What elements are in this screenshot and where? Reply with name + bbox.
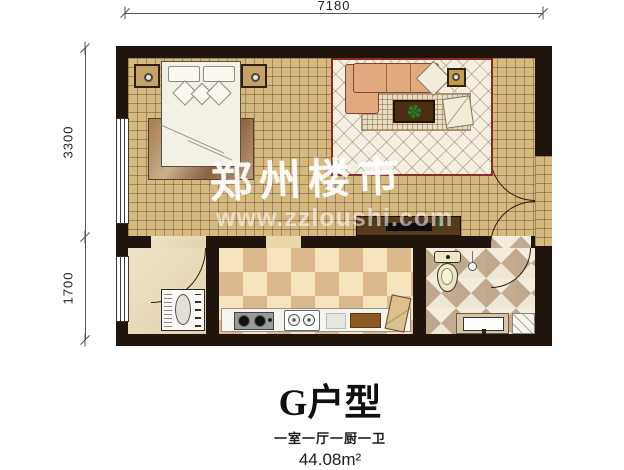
flush-button [446,255,450,259]
knob-icon [251,73,260,82]
window-icon [116,256,129,322]
dim-tick [79,42,92,55]
sink-basin [303,314,315,326]
nightstand-icon [241,64,267,88]
burner-icon [254,315,266,327]
dim-left-upper-label: 3300 [61,126,76,159]
blanket-fold [188,140,232,160]
burner-icon [238,315,250,327]
toilet-icon [434,251,461,263]
end-table-icon [447,68,466,87]
vanity-sink-icon [456,313,509,334]
knob-icon [452,73,460,81]
plan-title: G户型 [36,384,624,425]
floorplan-image: 7180 3300 1700 [0,0,624,470]
toilet-bowl [441,268,453,285]
faucet-icon [482,329,486,334]
kitchen-sink-icon [284,310,320,331]
nightstand-icon [134,64,160,88]
washer-drum [175,294,191,325]
plan-layout-label: 一室一厅一厨一卫 [36,428,624,447]
plan-walls [116,46,552,346]
dim-tick [537,7,550,20]
hall-door-opening [151,236,206,248]
blanket-fold [160,124,224,153]
bed-icon [161,61,241,167]
stove-icon [234,312,274,330]
entry-opening [535,156,552,246]
washer-knobs [195,294,201,327]
bath-mat-icon [512,313,535,334]
dim-top-line [125,13,543,14]
dim-left-lower-label: 1700 [61,272,76,305]
tv-icon [386,223,432,231]
kitchen-pass-opening [266,236,301,248]
plan-area-label: 44.08m² [36,450,624,470]
plant-icon [437,220,444,227]
caption: G户型 一室一厅一厨一卫 44.08m² [36,384,624,470]
window-icon [116,118,129,224]
stove-dial [268,318,272,322]
dim-top-label: 7180 [125,0,543,13]
plant-icon [408,105,421,118]
knob-icon [144,73,153,82]
shower-head-icon [468,262,477,271]
shower-hose [472,251,473,262]
dim-tick [79,334,92,347]
pillow-icon [206,80,231,105]
coffee-table-icon [393,100,435,123]
washer-controls [164,292,172,327]
dim-tick [119,7,132,20]
cutting-board-icon [350,313,381,328]
kitchen-counter [221,308,411,332]
dim-left-line [85,48,86,340]
bath-mat-icon [326,313,346,329]
tv-cabinet-icon [356,216,461,236]
washing-machine-icon [161,289,205,331]
dim-tick [79,231,92,244]
armchair-icon [442,95,474,129]
sink-basin [288,314,300,326]
